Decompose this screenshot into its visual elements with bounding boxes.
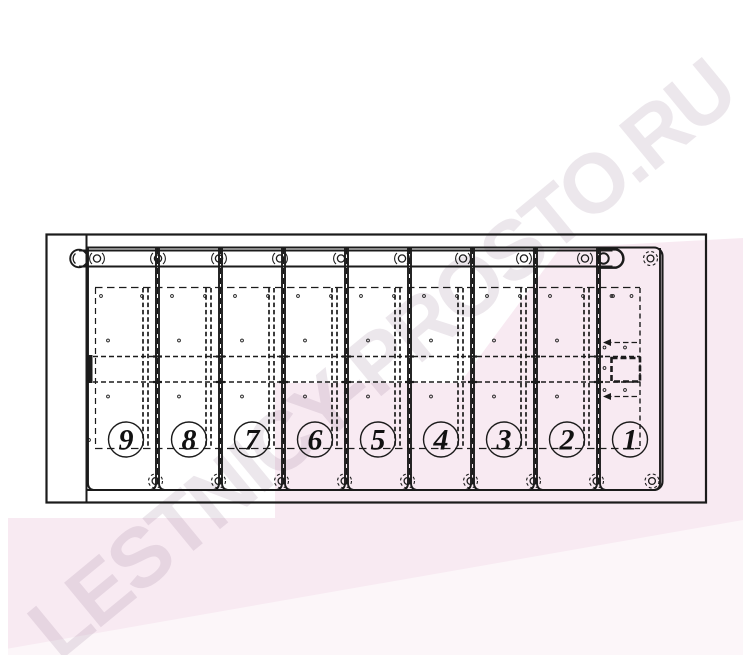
screw-dot [171,295,174,298]
screw-dot [297,295,300,298]
slat-number-label: 8 [182,424,197,457]
panel-assembly-drawing: LESTNICY-PROSTO.RU [0,0,743,655]
screw-dot [100,295,103,298]
rail-left-cap-arc [73,254,75,264]
screw-dot [330,295,333,298]
washer-arc-icon [224,253,226,264]
washer-arc-icon [102,253,104,264]
screw-dot [204,295,207,298]
screw-dot [241,339,244,342]
labels-layer: 987654321 [109,422,648,457]
slat-number-label: 9 [119,424,134,457]
washer-arc-icon [163,253,165,264]
washer-arc-icon [273,253,275,264]
screw-dot [234,295,237,298]
screw-washer-icon [93,255,100,262]
screw-dot [178,395,181,398]
slat-number-label: 1 [623,424,638,457]
slat-number-label: 7 [245,424,261,457]
washer-arc-icon [395,253,397,264]
screw-dot [360,295,363,298]
washer-arc-icon [151,253,153,264]
slat-number-label: 6 [308,424,323,457]
washer-arc-icon [334,253,336,264]
screw-washer-icon [398,255,405,262]
technical-drawing-page: LESTNICY-PROSTO.RU [0,0,743,655]
washer-arc-icon [90,253,92,264]
screw-dot [107,339,110,342]
screw-washer-icon [337,255,344,262]
screw-dot [304,339,307,342]
screw-dot [178,339,181,342]
slat-number-label: 2 [559,424,575,457]
screw-dot [107,395,110,398]
slat-number-label: 5 [371,424,386,457]
screw-dot [141,295,144,298]
washer-arc-icon [212,253,214,264]
screw-dot [241,395,244,398]
slat-number-label: 3 [496,424,512,457]
screw-dot [267,295,270,298]
slat-number-label: 4 [433,424,449,457]
